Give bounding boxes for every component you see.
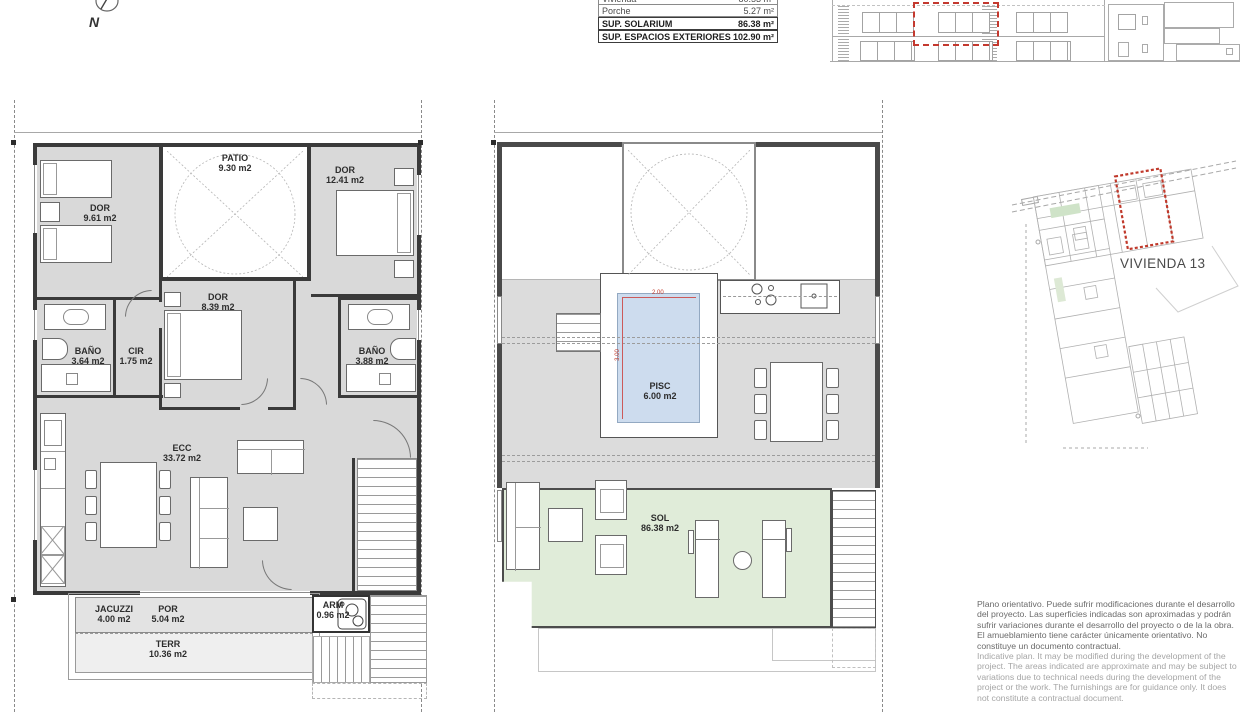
- room-label-armario: ARM0.96 m2: [316, 600, 349, 620]
- section-line: [882, 100, 883, 712]
- row-label: Porche: [602, 6, 631, 16]
- table-row: SUP. SOLARIUM 86.38 m²: [598, 17, 778, 30]
- areas-table: Vivienda 80.53 m² Porche 5.27 m² SUP. SO…: [598, 0, 778, 43]
- room-label-circulacion: CIR1.75 m2: [119, 346, 152, 366]
- unit-13-label: VIVIENDA 13: [1120, 256, 1205, 271]
- road-line: [1012, 168, 1236, 212]
- pool: [617, 293, 700, 423]
- room-label-dormitorio-1: DOR9.61 m2: [83, 203, 116, 223]
- exterior-stairs: [312, 636, 370, 683]
- nightstand: [164, 292, 181, 307]
- section-line: [14, 100, 15, 712]
- road-line: [1012, 161, 1236, 205]
- disclaimer: Plano orientativo. Puede sufrir modifica…: [977, 599, 1238, 703]
- stairs: [357, 458, 417, 591]
- row-value: 5.27 m²: [743, 6, 774, 16]
- row-value: 86.38 m²: [738, 19, 774, 29]
- compass-label: N: [89, 14, 100, 30]
- row-label: Vivienda: [602, 0, 636, 4]
- building-elevations: [830, 0, 1240, 64]
- pool-dim-line: [622, 297, 696, 298]
- outdoor-armchair: [595, 535, 627, 575]
- exterior-stairs: [370, 595, 427, 683]
- sofa: [190, 477, 228, 568]
- coffee-table: [243, 507, 278, 541]
- outdoor-sofa: [506, 482, 540, 570]
- room-label-bano-1: BAÑO3.64 m2: [71, 346, 104, 366]
- nightstand: [40, 202, 60, 222]
- room-label-solarium: SOL86.38 m2: [641, 513, 679, 533]
- room-label-jacuzzi: JACUZZI4.00 m2: [95, 604, 133, 624]
- sun-lounger: [695, 520, 719, 598]
- room-label-porche: POR5.04 m2: [151, 604, 184, 624]
- lounger-side-table: [688, 530, 694, 554]
- nightstand: [394, 260, 414, 278]
- row-value: 80.53 m²: [738, 0, 774, 4]
- sofa: [237, 440, 304, 474]
- stair-dashed-outline: [312, 683, 427, 699]
- outdoor-dining-table: [770, 362, 823, 442]
- patio-cross-icon: [628, 150, 750, 275]
- double-bed: [336, 190, 414, 256]
- room-label-patio: PATIO9.30 m2: [218, 153, 251, 173]
- solarium-stairs: [556, 313, 601, 352]
- unit-highlight-elevation: [913, 2, 999, 46]
- dining-table: [100, 462, 157, 548]
- pool-dim-line: [622, 297, 623, 419]
- room-label-estar-comedor-cocina: ECC33.72 m2: [163, 443, 201, 463]
- sun-lounger: [762, 520, 786, 598]
- row-label: SUP. ESPACIOS EXTERIORES: [602, 32, 731, 42]
- room-label-terraza: TERR10.36 m2: [149, 639, 187, 659]
- pantry-cross-icon: [41, 526, 65, 586]
- lounger-side-table: [786, 528, 792, 552]
- row-label: SUP. SOLARIUM: [602, 19, 672, 29]
- sliding-door: [140, 591, 310, 595]
- unit-13-highlight: [1115, 168, 1173, 249]
- roof-overhang-line: [14, 132, 421, 133]
- sink-counter: [348, 304, 410, 330]
- bathtub: [41, 364, 111, 392]
- elevation-window: [862, 12, 914, 33]
- table-row: SUP. ESPACIOS EXTERIORES 102.90 m²: [598, 30, 778, 43]
- toilet: [42, 338, 68, 360]
- building-footprint: [1032, 163, 1233, 435]
- nightstand: [164, 383, 181, 398]
- outdoor-kitchen: [720, 280, 840, 314]
- disclaimer-english: Indicative plan. It may be modified duri…: [977, 651, 1238, 703]
- room-label-dormitorio-3: DOR8.39 m2: [201, 292, 234, 312]
- room-label-dormitorio-2: DOR12.41 m2: [326, 165, 364, 185]
- toilet: [390, 338, 416, 360]
- bathtub: [346, 364, 416, 392]
- site-plan: VIVIENDA 13: [1008, 146, 1240, 476]
- table-row: Porche 5.27 m²: [598, 5, 778, 17]
- room-label-piscina: PISC6.00 m2: [643, 381, 676, 401]
- round-side-table: [733, 551, 752, 570]
- elevation-window: [860, 41, 915, 61]
- section-line: [494, 100, 495, 712]
- double-bed: [164, 310, 242, 380]
- bed: [40, 160, 112, 198]
- elevation-window: [1016, 12, 1068, 33]
- bed: [40, 225, 112, 263]
- nightstand: [394, 168, 414, 186]
- ground-line: [830, 61, 1240, 62]
- pool-length-dim: 3.00: [615, 349, 621, 361]
- elevation-window: [1016, 41, 1071, 61]
- room-label-bano-2: BAÑO3.88 m2: [355, 346, 388, 366]
- floor-plan-sheet: N Vivienda 80.53 m² Porche 5.27 m² SUP. …: [0, 0, 1240, 726]
- roof-overhang-line: [494, 132, 882, 133]
- row-value: 102.90 m²: [733, 32, 774, 42]
- sink-counter: [44, 304, 106, 330]
- outdoor-coffee-table: [548, 508, 583, 542]
- elevation-window: [1118, 14, 1136, 30]
- outdoor-armchair: [595, 480, 627, 520]
- stair-hatch: [838, 6, 849, 61]
- kitchen-counter: [40, 413, 66, 587]
- terrace: [75, 633, 313, 673]
- compass-north-icon: N: [80, 0, 126, 34]
- disclaimer-spanish: Plano orientativo. Puede sufrir modifica…: [977, 599, 1238, 651]
- solarium-stairs: [832, 490, 876, 628]
- pool-width-dim: 2.00: [652, 290, 664, 296]
